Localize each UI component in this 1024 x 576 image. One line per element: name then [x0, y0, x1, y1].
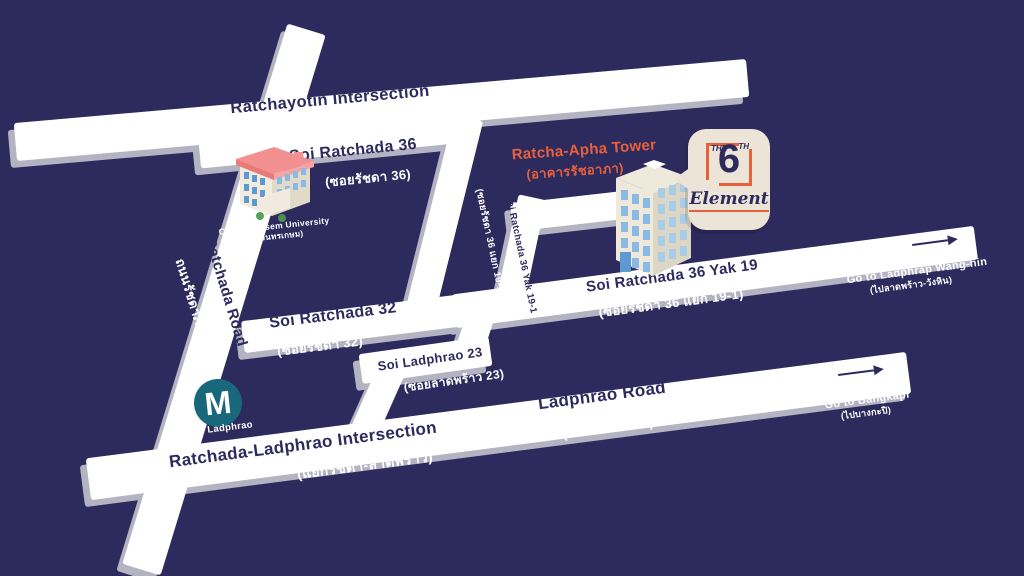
sixth-element-logo: THE 6 TH Element — [688, 129, 770, 230]
logo-th-text: TH — [738, 142, 749, 151]
sixth-element-logo-frame: THE 6 TH — [704, 138, 754, 186]
logo-element-script: Element — [688, 189, 770, 209]
map-canvas: Ratchayotin Intersection (แยกรัชโยธิน) S… — [0, 0, 1024, 576]
mrt-letter: M — [203, 386, 233, 421]
logo-number-six: 6 — [718, 139, 740, 179]
university-building-icon — [224, 144, 324, 224]
